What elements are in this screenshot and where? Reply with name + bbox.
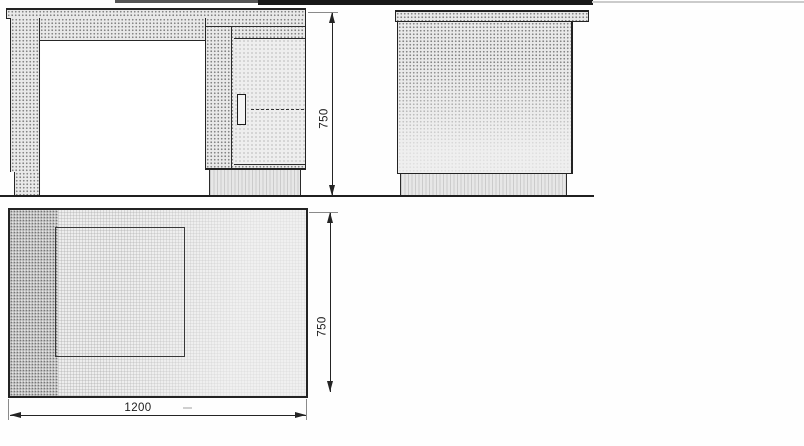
side-panel: [397, 22, 573, 174]
front-apron: [40, 18, 206, 41]
arrow-right-icon: [295, 412, 306, 418]
arrow-up-icon: [327, 212, 333, 223]
plan-view: 750 1200: [0, 200, 360, 446]
scan-smudge: [183, 407, 192, 409]
arrow-down-icon: [327, 381, 333, 392]
front-cabinet: [205, 18, 306, 170]
plan-inner-square: [55, 227, 185, 357]
handle-centerline: [251, 109, 304, 110]
plan-width-dimension: 1200: [0, 398, 340, 438]
extension-line: [309, 212, 338, 213]
front-left-leg-foot: [14, 172, 40, 196]
cabinet-left-stile: [206, 27, 232, 168]
dimension-line: [332, 13, 333, 196]
dimension-line: [330, 213, 331, 392]
dimension-line: [10, 415, 306, 416]
side-elevation-view: [380, 0, 600, 200]
door-handle: [237, 94, 246, 125]
front-cabinet-plinth: [209, 170, 301, 195]
front-elevation-view: [0, 0, 340, 200]
front-height-label: 750: [319, 104, 332, 134]
extension-line: [8, 399, 9, 420]
scan-artifact-line: [592, 1, 804, 3]
plan-depth-label: 750: [317, 312, 330, 342]
arrow-down-icon: [329, 185, 335, 196]
side-panel-shading: [398, 22, 571, 173]
plan-width-label: 1200: [110, 402, 166, 415]
plan-depth-dimension: 750: [300, 200, 345, 420]
front-left-leg: [10, 18, 40, 172]
front-worktop: [6, 8, 306, 19]
side-plinth: [400, 174, 567, 196]
arrow-left-icon: [10, 412, 21, 418]
front-knee-recess: [41, 41, 205, 196]
cabinet-drawer-front: [234, 27, 306, 39]
cabinet-top-rail: [206, 18, 305, 27]
side-worktop: [395, 10, 589, 23]
front-height-dimension: 750: [300, 0, 345, 200]
ground-line: [0, 195, 594, 197]
technical-drawing-canvas: 750 750 1200: [0, 0, 804, 446]
arrow-up-icon: [329, 12, 335, 23]
